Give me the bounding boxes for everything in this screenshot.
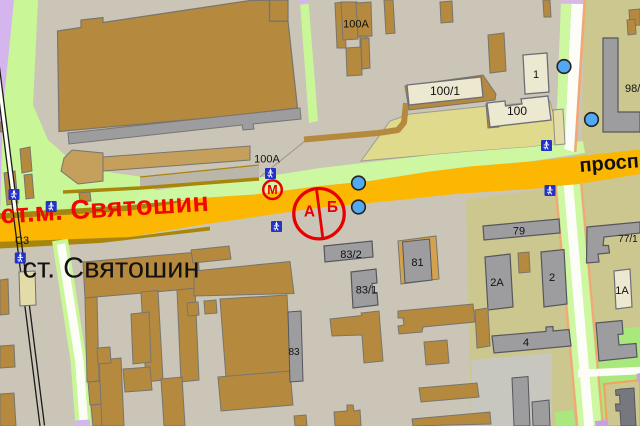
svg-text:83/2: 83/2	[340, 249, 361, 261]
svg-text:100A: 100A	[343, 19, 369, 31]
svg-text:98/: 98/	[625, 83, 640, 95]
svg-text:79: 79	[513, 226, 525, 238]
svg-text:83: 83	[288, 347, 300, 358]
svg-text:2: 2	[549, 272, 555, 284]
svg-text:81: 81	[411, 257, 423, 269]
svg-text:77/1: 77/1	[618, 234, 638, 245]
svg-text:М: М	[267, 183, 277, 197]
svg-text:А: А	[304, 204, 315, 221]
svg-text:С3: С3	[15, 235, 29, 247]
svg-text:4: 4	[523, 337, 529, 349]
svg-text:100/1: 100/1	[430, 84, 460, 98]
svg-text:1: 1	[533, 69, 539, 81]
svg-text:Б: Б	[327, 199, 338, 216]
svg-text:100A: 100A	[254, 154, 280, 166]
svg-text:1A: 1A	[615, 285, 629, 297]
svg-text:ст. Святошин: ст. Святошин	[23, 253, 200, 285]
svg-text:2A: 2A	[490, 277, 504, 289]
svg-text:83/1: 83/1	[356, 285, 377, 297]
svg-text:100: 100	[507, 104, 527, 118]
